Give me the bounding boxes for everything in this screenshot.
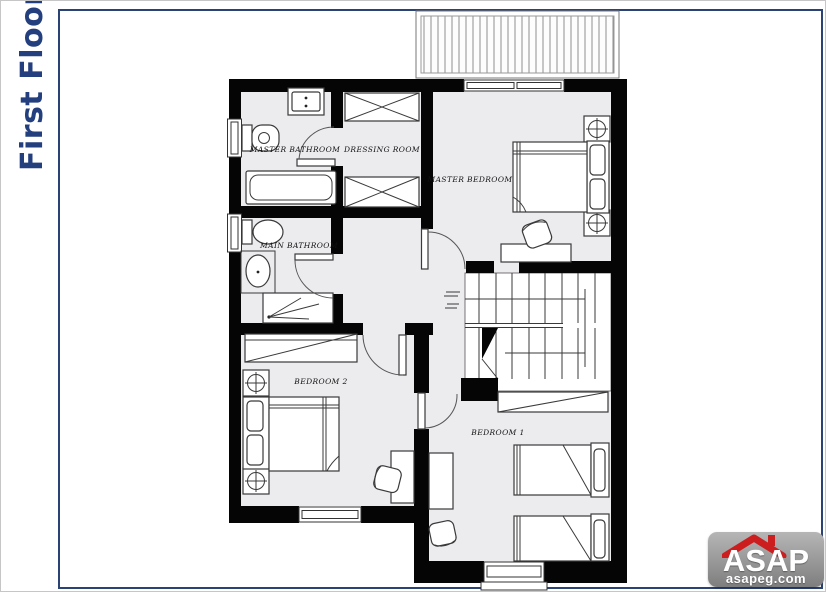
room-label-master-bathroom: MASTER BATHROOM — [249, 145, 340, 154]
bathtub — [246, 171, 336, 204]
single-bed — [514, 516, 591, 561]
desk — [429, 453, 453, 509]
room-label-dressing-room: DRESSING ROOM — [343, 145, 420, 154]
door-leaf — [399, 335, 406, 375]
room-label-main-bathroom: MAIN BATHROOM — [259, 241, 338, 250]
asap-logo: ASAP asapeg.com — [708, 532, 824, 587]
pillow — [590, 179, 605, 209]
room-label-bedroom-1: BEDROOM 1 — [470, 428, 524, 437]
pillow — [247, 435, 263, 465]
door-leaf — [418, 393, 425, 429]
toilet — [242, 220, 252, 244]
screenshot-canvas: First Floor — [0, 0, 826, 592]
pillow — [594, 449, 605, 491]
door-leaf — [295, 254, 333, 260]
pergola-trellis — [416, 11, 619, 78]
floor-plan: MASTER BATHROOM DRESSING ROOM MASTER BED… — [223, 1, 635, 592]
logo-domain: asapeg.com — [708, 572, 824, 585]
page-title: First Floor — [15, 0, 50, 171]
pillow — [590, 145, 605, 175]
room-label-bedroom-2: BEDROOM 2 — [293, 377, 347, 386]
pillow — [247, 401, 263, 431]
pillow — [594, 520, 605, 558]
double-bed — [513, 142, 587, 212]
room-label-master-bedroom: MASTER BEDROOM — [427, 175, 513, 184]
door-leaf — [422, 229, 429, 269]
door-leaf — [297, 159, 335, 166]
single-bed — [514, 445, 591, 495]
